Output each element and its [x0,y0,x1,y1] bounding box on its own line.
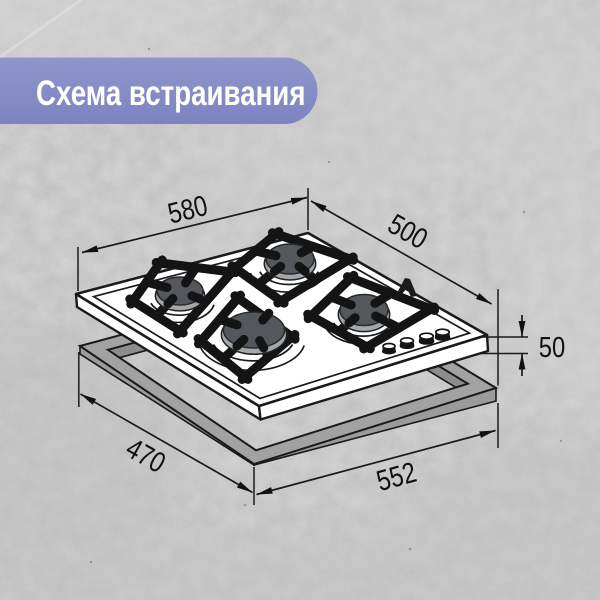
svg-text:Схема встраивания: Схема встраивания [36,73,305,113]
svg-text:50: 50 [539,331,565,364]
